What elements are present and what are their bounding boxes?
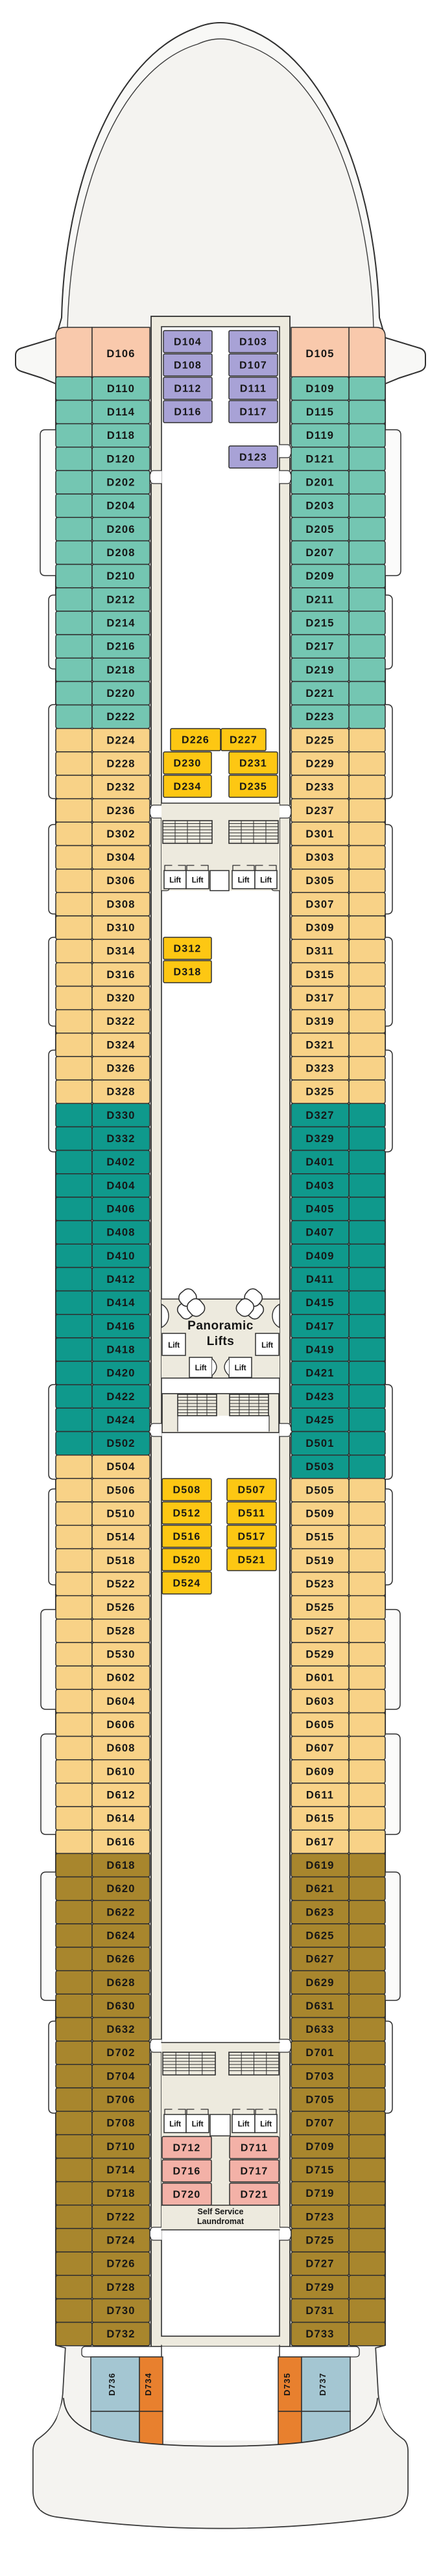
svg-text:D308: D308 (106, 898, 135, 910)
svg-text:D622: D622 (106, 1906, 135, 1918)
svg-text:D520: D520 (173, 1555, 200, 1566)
svg-text:D108: D108 (174, 360, 202, 371)
svg-text:D217: D217 (305, 641, 334, 653)
svg-text:D522: D522 (106, 1578, 135, 1590)
svg-text:D410: D410 (106, 1250, 135, 1262)
svg-text:D610: D610 (106, 1766, 135, 1777)
svg-text:D114: D114 (107, 406, 135, 418)
svg-text:D733: D733 (305, 2328, 334, 2340)
svg-text:D501: D501 (305, 1438, 334, 1449)
svg-text:D505: D505 (305, 1484, 334, 1496)
svg-text:D221: D221 (305, 688, 334, 699)
svg-text:D304: D304 (106, 852, 135, 863)
svg-text:D107: D107 (239, 360, 267, 371)
svg-text:D216: D216 (106, 641, 135, 653)
svg-text:D330: D330 (106, 1110, 135, 1121)
svg-text:D224: D224 (106, 734, 135, 746)
svg-text:D408: D408 (106, 1227, 135, 1239)
svg-text:D229: D229 (305, 758, 334, 769)
svg-text:D231: D231 (239, 758, 267, 769)
svg-text:Lift: Lift (260, 876, 272, 885)
svg-text:D615: D615 (305, 1813, 334, 1825)
svg-text:D419: D419 (305, 1344, 334, 1355)
svg-text:Lift: Lift (169, 2120, 181, 2129)
svg-text:D617: D617 (305, 1836, 334, 1848)
svg-text:D510: D510 (106, 1508, 135, 1520)
svg-text:D633: D633 (305, 2024, 334, 2035)
svg-text:D718: D718 (106, 2188, 135, 2199)
svg-text:D611: D611 (306, 1790, 334, 1801)
svg-text:D728: D728 (106, 2282, 135, 2293)
svg-text:D214: D214 (106, 618, 135, 629)
svg-text:D425: D425 (305, 1414, 334, 1426)
svg-text:D327: D327 (305, 1110, 334, 1121)
svg-text:D318: D318 (173, 967, 201, 978)
svg-text:D407: D407 (305, 1227, 334, 1239)
svg-text:D320: D320 (106, 992, 135, 1004)
svg-text:D502: D502 (106, 1438, 135, 1449)
svg-text:D716: D716 (173, 2166, 200, 2177)
svg-text:D632: D632 (106, 2024, 135, 2035)
svg-text:D627: D627 (305, 1954, 334, 1965)
svg-text:D511: D511 (238, 1508, 265, 1519)
svg-text:D526: D526 (106, 1602, 135, 1613)
svg-text:D104: D104 (174, 337, 202, 348)
svg-text:D720: D720 (173, 2190, 200, 2201)
svg-text:D508: D508 (173, 1485, 200, 1496)
svg-text:D416: D416 (106, 1320, 135, 1332)
svg-text:D714: D714 (106, 2164, 135, 2176)
svg-text:D709: D709 (305, 2141, 334, 2153)
svg-text:D707: D707 (305, 2118, 334, 2129)
svg-text:D237: D237 (305, 805, 334, 817)
svg-text:Lift: Lift (260, 2120, 272, 2129)
svg-text:Lift: Lift (192, 2120, 204, 2129)
svg-text:D509: D509 (305, 1508, 334, 1520)
svg-text:D305: D305 (305, 875, 334, 887)
svg-text:Self Service: Self Service (198, 2207, 244, 2216)
svg-text:D731: D731 (305, 2305, 334, 2317)
svg-text:D528: D528 (106, 1625, 135, 1637)
svg-text:D328: D328 (106, 1086, 135, 1098)
svg-text:D106: D106 (106, 348, 135, 360)
svg-text:Panoramic: Panoramic (187, 1319, 254, 1333)
svg-text:Lift: Lift (195, 1363, 207, 1372)
svg-text:D203: D203 (305, 500, 334, 512)
svg-text:D211: D211 (306, 594, 334, 605)
svg-text:D715: D715 (305, 2164, 334, 2176)
svg-text:D227: D227 (230, 735, 257, 746)
svg-text:D701: D701 (305, 2047, 334, 2059)
svg-text:D724: D724 (106, 2235, 135, 2247)
svg-text:D208: D208 (106, 547, 135, 559)
svg-text:D629: D629 (305, 1977, 334, 1989)
svg-text:D412: D412 (106, 1274, 135, 1285)
svg-text:D517: D517 (237, 1532, 265, 1543)
svg-text:D626: D626 (106, 1954, 135, 1965)
svg-text:D415: D415 (305, 1297, 334, 1309)
svg-text:D619: D619 (305, 1860, 334, 1871)
svg-text:D317: D317 (305, 992, 334, 1004)
svg-text:D504: D504 (106, 1461, 135, 1473)
svg-text:Lift: Lift (235, 1363, 246, 1372)
svg-text:D422: D422 (106, 1391, 135, 1403)
svg-text:D702: D702 (106, 2047, 135, 2059)
svg-text:D521: D521 (237, 1555, 265, 1566)
svg-text:D704: D704 (106, 2070, 135, 2082)
svg-text:D726: D726 (106, 2258, 135, 2270)
svg-text:D625: D625 (305, 1930, 334, 1941)
svg-text:D607: D607 (305, 1742, 334, 1754)
svg-text:D618: D618 (106, 1860, 135, 1871)
svg-text:D111: D111 (240, 384, 267, 395)
svg-text:Lift: Lift (168, 1341, 180, 1350)
svg-text:D710: D710 (106, 2141, 135, 2153)
svg-text:D325: D325 (305, 1086, 334, 1098)
svg-text:D620: D620 (106, 1883, 135, 1895)
svg-text:D310: D310 (106, 922, 135, 934)
svg-text:D737: D737 (318, 2372, 328, 2396)
svg-text:D420: D420 (106, 1368, 135, 1379)
svg-text:D530: D530 (106, 1649, 135, 1661)
svg-text:D705: D705 (305, 2094, 334, 2106)
svg-text:D110: D110 (107, 383, 135, 395)
svg-text:D628: D628 (106, 1977, 135, 1989)
svg-text:D706: D706 (106, 2094, 135, 2106)
svg-text:D321: D321 (305, 1039, 334, 1051)
svg-text:D222: D222 (106, 711, 135, 723)
svg-text:D403: D403 (305, 1180, 334, 1191)
svg-text:D201: D201 (305, 477, 334, 489)
svg-text:D723: D723 (305, 2211, 334, 2223)
svg-text:D623: D623 (305, 1906, 334, 1918)
svg-text:D220: D220 (106, 688, 135, 699)
svg-text:D306: D306 (106, 875, 135, 887)
svg-text:D307: D307 (305, 898, 334, 910)
svg-text:D105: D105 (305, 348, 334, 360)
svg-text:D324: D324 (106, 1039, 135, 1051)
svg-text:D332: D332 (106, 1133, 135, 1145)
svg-text:D729: D729 (305, 2282, 334, 2293)
svg-text:D219: D219 (305, 664, 334, 676)
svg-text:D417: D417 (305, 1320, 334, 1332)
svg-text:D228: D228 (106, 758, 135, 769)
svg-text:D424: D424 (106, 1414, 135, 1426)
svg-text:D614: D614 (106, 1813, 135, 1825)
svg-text:D721: D721 (240, 2190, 268, 2201)
svg-text:D525: D525 (305, 1602, 334, 1613)
svg-text:D315: D315 (305, 969, 334, 981)
svg-text:D312: D312 (173, 944, 201, 955)
svg-text:D735: D735 (282, 2372, 292, 2396)
svg-text:D218: D218 (106, 664, 135, 676)
svg-text:D119: D119 (306, 430, 334, 441)
svg-text:Lift: Lift (238, 876, 250, 885)
svg-text:D527: D527 (305, 1625, 334, 1637)
svg-text:D235: D235 (239, 782, 267, 793)
svg-text:D210: D210 (106, 570, 135, 582)
svg-text:D703: D703 (305, 2070, 334, 2082)
svg-text:D121: D121 (305, 453, 334, 465)
svg-text:D414: D414 (106, 1297, 135, 1309)
svg-text:D621: D621 (305, 1883, 334, 1895)
svg-text:D207: D207 (305, 547, 334, 559)
svg-text:D711: D711 (241, 2143, 268, 2154)
svg-text:D732: D732 (106, 2328, 135, 2340)
svg-text:D722: D722 (106, 2211, 135, 2223)
svg-text:D409: D409 (305, 1250, 334, 1262)
svg-text:D727: D727 (305, 2258, 334, 2270)
svg-text:D314: D314 (106, 946, 135, 957)
svg-text:D512: D512 (173, 1508, 200, 1519)
svg-text:D631: D631 (305, 2000, 334, 2012)
svg-text:D624: D624 (106, 1930, 135, 1941)
svg-text:D112: D112 (174, 384, 201, 395)
svg-text:D234: D234 (173, 782, 201, 793)
svg-text:D421: D421 (305, 1368, 334, 1379)
svg-text:D605: D605 (305, 1719, 334, 1731)
svg-text:D712: D712 (173, 2143, 200, 2154)
svg-text:Laundromat: Laundromat (197, 2217, 244, 2226)
svg-text:D405: D405 (305, 1204, 334, 1215)
svg-text:D603: D603 (305, 1696, 334, 1707)
svg-text:D118: D118 (107, 430, 135, 441)
svg-text:D236: D236 (106, 805, 135, 817)
svg-text:D223: D223 (305, 711, 334, 723)
svg-text:D226: D226 (182, 735, 209, 746)
svg-text:D411: D411 (306, 1274, 334, 1285)
svg-text:D309: D309 (305, 922, 334, 934)
svg-text:D518: D518 (106, 1555, 135, 1567)
svg-text:D708: D708 (106, 2118, 135, 2129)
svg-text:D311: D311 (306, 946, 334, 957)
svg-text:D301: D301 (305, 828, 334, 840)
svg-text:D204: D204 (106, 500, 135, 512)
svg-text:D404: D404 (106, 1180, 135, 1191)
svg-text:D212: D212 (106, 594, 135, 605)
svg-text:D734: D734 (143, 2372, 153, 2396)
svg-text:D103: D103 (239, 337, 267, 348)
svg-text:D120: D120 (106, 453, 135, 465)
svg-text:D506: D506 (106, 1484, 135, 1496)
svg-text:D604: D604 (106, 1696, 135, 1707)
svg-text:Lift: Lift (261, 1341, 273, 1350)
svg-text:D524: D524 (173, 1578, 200, 1589)
svg-text:D516: D516 (173, 1532, 200, 1543)
svg-text:D303: D303 (305, 852, 334, 863)
svg-text:D602: D602 (106, 1672, 135, 1684)
svg-text:D117: D117 (239, 407, 267, 418)
svg-text:D232: D232 (106, 782, 135, 793)
svg-text:D233: D233 (305, 782, 334, 793)
svg-text:D116: D116 (174, 407, 201, 418)
svg-text:D608: D608 (106, 1742, 135, 1754)
svg-text:D215: D215 (305, 618, 334, 629)
svg-text:Lift: Lift (238, 2120, 250, 2129)
svg-text:D609: D609 (305, 1766, 334, 1777)
svg-text:Lift: Lift (192, 876, 204, 885)
svg-text:D514: D514 (106, 1532, 135, 1543)
svg-text:D402: D402 (106, 1156, 135, 1168)
svg-text:D322: D322 (106, 1016, 135, 1027)
svg-text:D606: D606 (106, 1719, 135, 1731)
svg-text:D202: D202 (106, 477, 135, 489)
svg-text:D630: D630 (106, 2000, 135, 2012)
svg-text:D401: D401 (305, 1156, 334, 1168)
svg-text:D418: D418 (106, 1344, 135, 1355)
svg-text:D326: D326 (106, 1063, 135, 1075)
svg-text:D225: D225 (305, 734, 334, 746)
svg-text:D316: D316 (106, 969, 135, 981)
svg-text:D319: D319 (305, 1016, 334, 1027)
svg-text:D616: D616 (106, 1836, 135, 1848)
svg-text:D329: D329 (305, 1133, 334, 1145)
svg-text:D515: D515 (305, 1532, 334, 1543)
svg-text:D503: D503 (305, 1461, 334, 1473)
svg-text:D725: D725 (305, 2235, 334, 2247)
svg-text:D423: D423 (305, 1391, 334, 1403)
svg-text:D717: D717 (240, 2166, 268, 2177)
svg-text:D519: D519 (305, 1555, 334, 1567)
svg-text:D323: D323 (305, 1063, 334, 1075)
svg-text:D529: D529 (305, 1649, 334, 1661)
svg-text:D205: D205 (305, 524, 334, 535)
svg-text:Lifts: Lifts (207, 1335, 235, 1348)
svg-text:D736: D736 (107, 2372, 117, 2396)
svg-text:D115: D115 (306, 406, 334, 418)
svg-text:Lift: Lift (169, 876, 181, 885)
svg-text:D406: D406 (106, 1204, 135, 1215)
svg-text:D230: D230 (173, 758, 201, 769)
svg-text:D601: D601 (305, 1672, 334, 1684)
svg-text:D123: D123 (239, 452, 267, 463)
svg-text:D209: D209 (305, 570, 334, 582)
svg-text:D507: D507 (237, 1485, 265, 1496)
svg-text:D523: D523 (305, 1578, 334, 1590)
svg-text:D719: D719 (305, 2188, 334, 2199)
svg-text:D730: D730 (106, 2305, 135, 2317)
svg-text:D109: D109 (305, 383, 334, 395)
svg-text:D206: D206 (106, 524, 135, 535)
svg-text:D612: D612 (106, 1790, 135, 1801)
svg-text:D302: D302 (106, 828, 135, 840)
